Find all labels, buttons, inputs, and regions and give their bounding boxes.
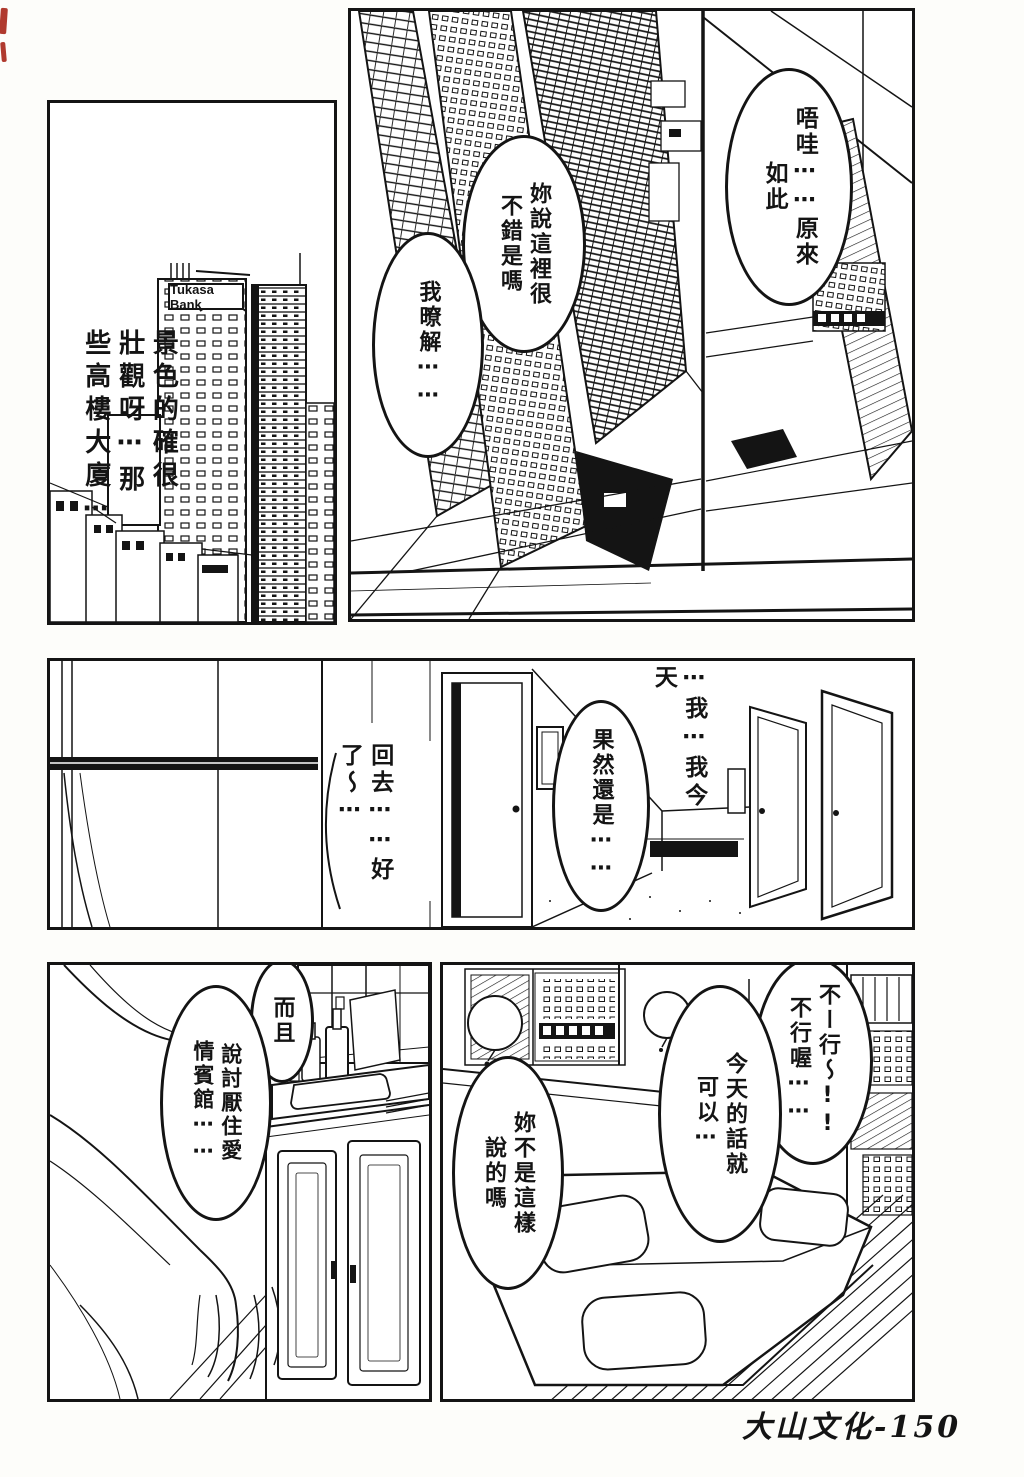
speech-bubble-love-hotel: 說討厭住愛 情賓館⋯⋯ <box>160 985 272 1221</box>
panel-city-view: Tukasa Bank 景色的確很 壯觀呀⋯那 些高樓大廈⋯ <box>47 100 337 625</box>
speech-text: 說討厭住愛 情賓館⋯⋯ <box>188 1040 243 1166</box>
panel-kitchen: 而且 說討厭住愛 情賓館⋯⋯ <box>47 962 432 1402</box>
speech-bubble-wow: 唔哇⋯⋯原來 如此 <box>725 68 853 306</box>
speech-text: 妳不是這樣 說的嗎 <box>479 1111 537 1236</box>
speech-bubble-you-said-so: 妳不是這樣 說的嗎 <box>452 1056 564 1290</box>
speech-text: 我暸解⋯⋯ <box>413 280 442 411</box>
speech-text: 妳說這裡很 不錯是嗎 <box>495 182 553 307</box>
speech-text: 而且 <box>267 996 296 1046</box>
speech-text: 唔哇⋯⋯原來 如此 <box>759 106 820 268</box>
scan-artifact <box>0 42 7 62</box>
hallway-art <box>50 661 912 927</box>
panel-hallway: ⋯我⋯我今 天 果然還是⋯⋯ 回去⋯⋯好 了～⋯ <box>47 658 915 930</box>
scan-artifact <box>0 8 8 34</box>
panel-skyscrapers: 妳說這裡很 不錯是嗎 我暸解⋯⋯ 唔哇⋯⋯原來 如此 <box>348 8 915 622</box>
speech-text: 不ー行～!! 不行喔⋯⋯ <box>784 983 842 1139</box>
building-sign: Tukasa Bank <box>168 283 244 310</box>
speech-bubble-after-all: 果然還是⋯⋯ <box>552 700 650 912</box>
panel-bedroom: 不ー行～!! 不行喔⋯⋯ 今天的話就 可以⋯ 妳不是這樣 說的嗎 <box>440 962 915 1402</box>
manga-page: Tukasa Bank 景色的確很 壯觀呀⋯那 些高樓大廈⋯ <box>0 0 1024 1477</box>
speech-text: 今天的話就 可以⋯ <box>691 1052 749 1177</box>
narration-scenery: 景色的確很 壯觀呀⋯那 些高樓大廈⋯ <box>78 329 179 531</box>
speech-text-today-i: ⋯我⋯我今 天 <box>648 665 709 811</box>
speech-bubble-today-ok: 今天的話就 可以⋯ <box>658 985 782 1243</box>
speech-text-go-home: 回去⋯⋯好 了～⋯ <box>334 743 395 884</box>
page-number: 大山文化-150 <box>742 1402 961 1446</box>
speech-text: 果然還是⋯⋯ <box>586 728 615 884</box>
speech-bubble-i-see: 我暸解⋯⋯ <box>372 232 484 458</box>
